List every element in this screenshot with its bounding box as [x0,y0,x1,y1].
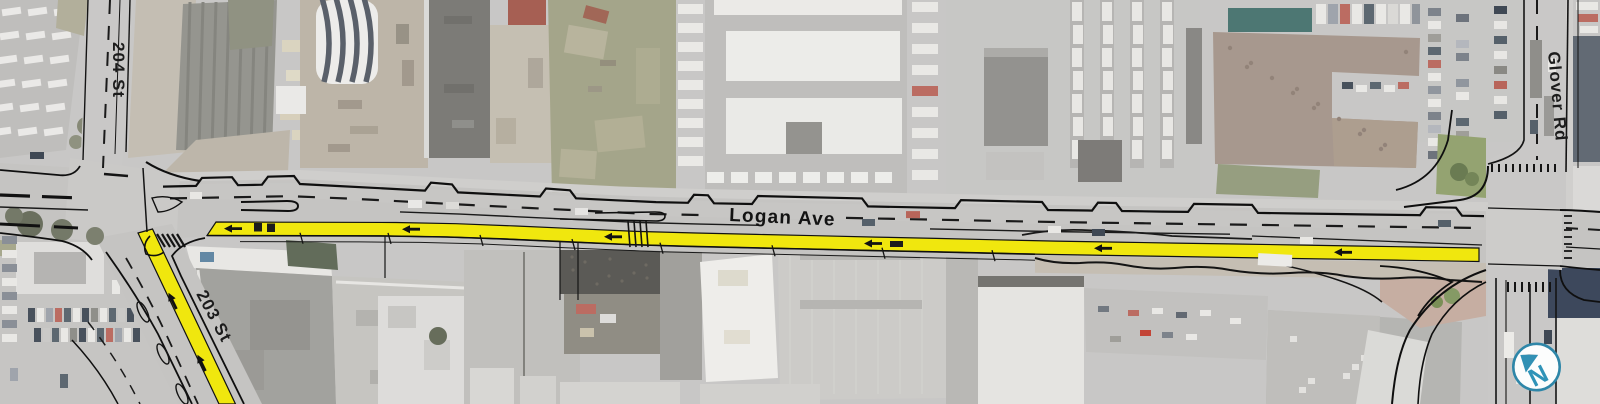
svg-text:204 St: 204 St [109,42,128,98]
